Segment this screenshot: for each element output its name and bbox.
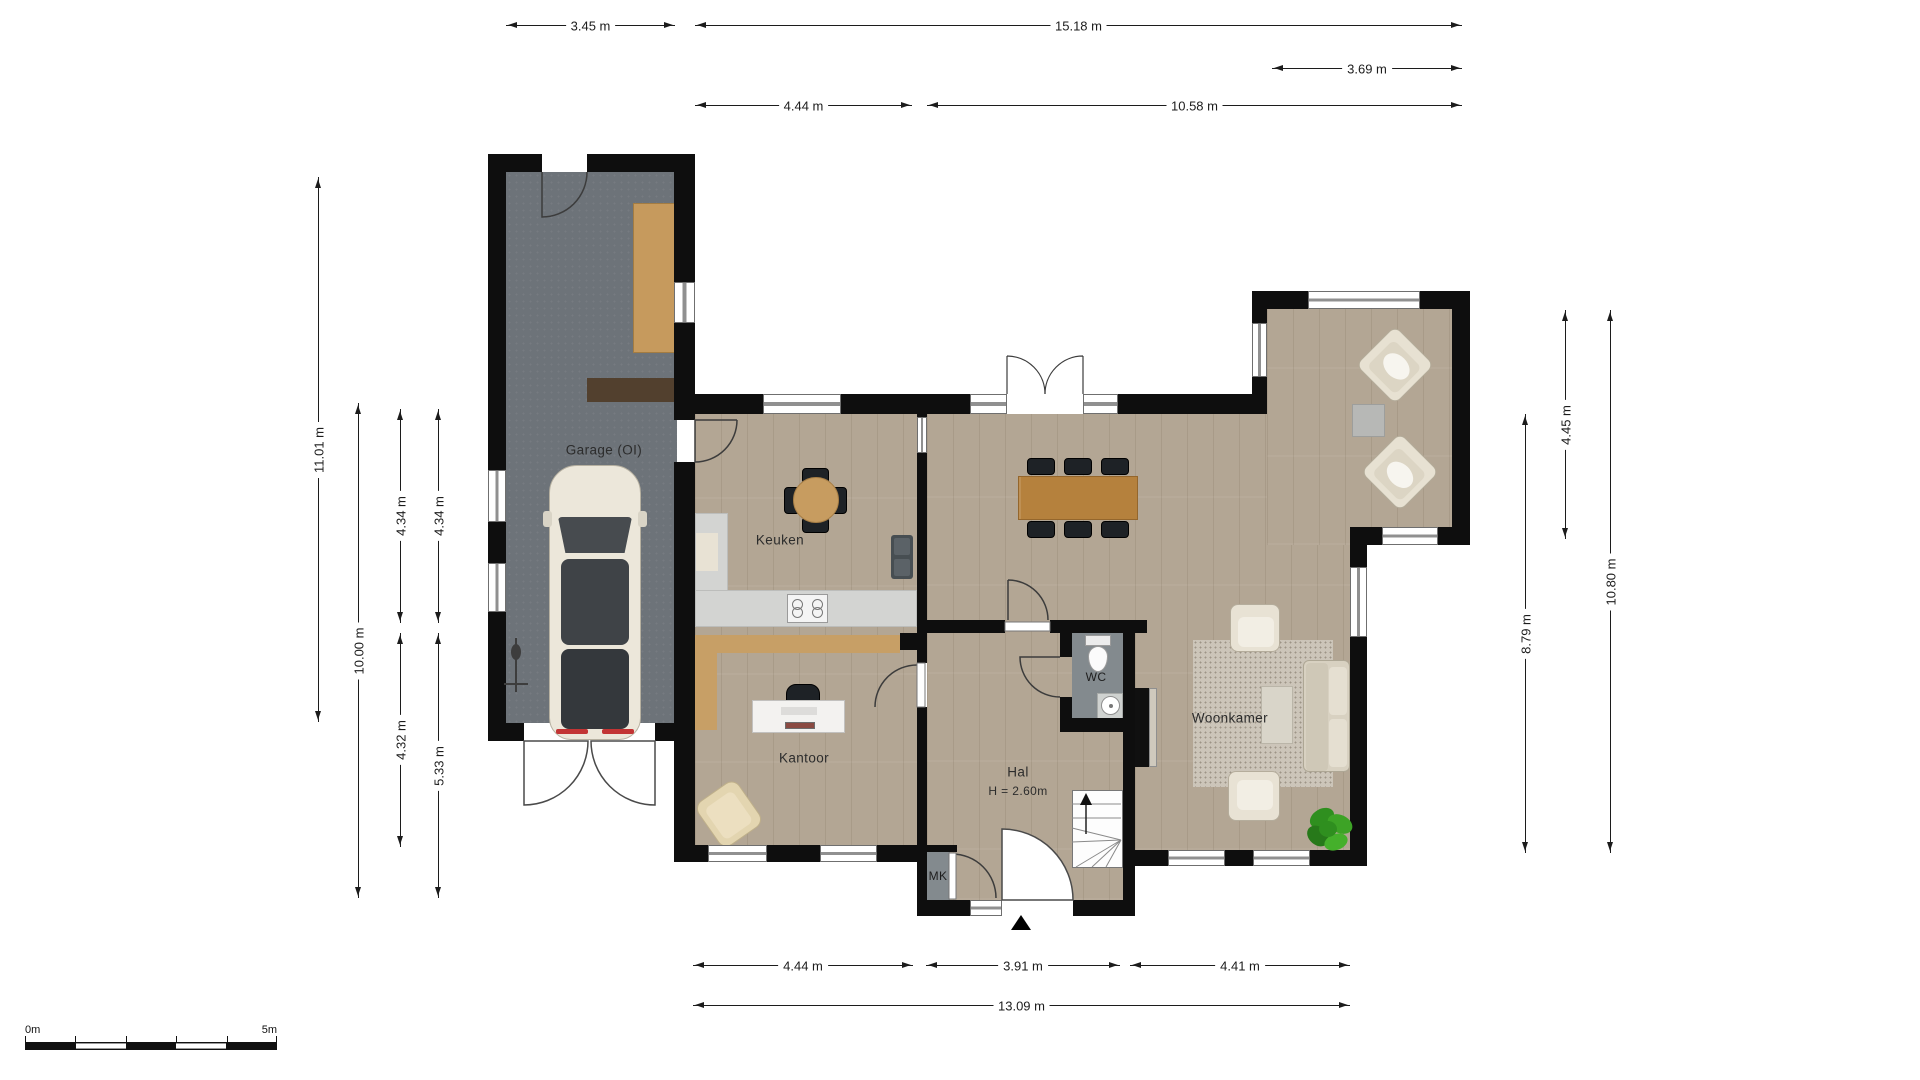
dining-chair [1101, 521, 1129, 538]
wall [927, 620, 1005, 633]
sofa [1303, 660, 1350, 772]
room-label-garage: Garage (OI) [566, 443, 642, 458]
wall [674, 462, 695, 741]
dining-chair [1027, 458, 1055, 475]
wall [488, 522, 506, 563]
dimension-line: 4.34 m [400, 409, 401, 623]
dimension-label: 8.79 m [1519, 609, 1534, 659]
car-windshield [558, 517, 632, 553]
scale-tick [176, 1036, 177, 1042]
side-table [1352, 404, 1385, 437]
car-roof-front [561, 559, 629, 645]
window [1252, 323, 1267, 377]
dimension-label: 13.09 m [993, 999, 1050, 1014]
wall [488, 612, 506, 723]
wall [1310, 850, 1367, 866]
dimension-line: 3.91 m [926, 965, 1120, 966]
workbench [633, 203, 677, 353]
dimension-line: 4.34 m [438, 409, 439, 623]
kitchen-sink [891, 535, 913, 579]
room-label-hal-height: H = 2.60m [988, 784, 1047, 798]
scale-bar-segment [226, 1043, 276, 1049]
french-door-arc [1045, 356, 1083, 394]
wall [1118, 394, 1267, 414]
wall [917, 900, 970, 916]
dimension-line: 11.01 m [318, 177, 319, 722]
wall [674, 845, 708, 862]
scale-tick [276, 1036, 277, 1042]
wall [488, 723, 524, 741]
dimension-line: 4.44 m [693, 965, 913, 966]
door-leaf [917, 663, 925, 707]
dining-chair [1064, 458, 1092, 475]
staircase [1072, 790, 1123, 868]
scale-tick [126, 1036, 127, 1042]
french-door-arc [1007, 356, 1045, 394]
wall [917, 394, 927, 417]
tv-niche [1135, 688, 1149, 767]
wall [488, 172, 506, 470]
window [708, 845, 767, 862]
car-taillight-left [556, 729, 588, 734]
office-cabinet-top [695, 635, 900, 653]
dimension-line: 3.45 m [506, 25, 675, 26]
toilet [1085, 635, 1111, 646]
wall [1123, 632, 1135, 916]
dimension-label: 4.45 m [1559, 400, 1574, 450]
dimension-line: 10.80 m [1610, 310, 1611, 853]
kitchen-round-table [793, 477, 839, 523]
dimension-line: 3.69 m [1272, 68, 1462, 69]
dimension-label: 4.34 m [394, 491, 409, 541]
wall [767, 845, 820, 862]
dimension-label: 4.44 m [779, 99, 829, 114]
dimension-line: 4.45 m [1565, 310, 1566, 539]
tv-niche-frame [1149, 688, 1157, 767]
dimension-line: 4.41 m [1130, 965, 1350, 966]
dimension-line: 15.18 m [695, 25, 1462, 26]
dimension-label: 4.32 m [394, 715, 409, 765]
window [1083, 394, 1118, 414]
dimension-line: 5.33 m [438, 633, 439, 898]
dimension-label: 3.91 m [998, 959, 1048, 974]
dimension-line: 10.58 m [927, 105, 1462, 106]
wall [674, 741, 695, 862]
scale-bar-segment [76, 1043, 126, 1049]
scale-tick [25, 1036, 26, 1042]
wall [900, 633, 917, 650]
dimension-line: 4.32 m [400, 633, 401, 847]
car-taillight-right [602, 729, 634, 734]
dimension-line: 4.44 m [695, 105, 912, 106]
scale-tick [227, 1036, 228, 1042]
window [488, 470, 506, 522]
wall [488, 154, 542, 172]
room-label-kantoor: Kantoor [779, 751, 829, 766]
car-roof-rear [561, 649, 629, 729]
wall [841, 394, 927, 414]
wc-sink [1101, 696, 1120, 715]
dimension-line: 10.00 m [358, 403, 359, 898]
room-label-mk: MK [929, 869, 948, 883]
dimension-line: 13.09 m [693, 1005, 1350, 1006]
dimension-line: 8.79 m [1525, 414, 1526, 853]
scale-bar-end-label: 5m [262, 1024, 277, 1036]
scale-bar-segment [26, 1043, 76, 1049]
dining-table [1018, 476, 1138, 520]
living-armchair [1228, 771, 1280, 821]
room-label-keuken: Keuken [756, 533, 804, 548]
window [1308, 291, 1420, 309]
wall [1135, 850, 1168, 866]
scale-bar: 0m 5m [25, 1042, 277, 1050]
desk [752, 700, 845, 733]
wall [1452, 291, 1470, 541]
window [1382, 527, 1438, 545]
dining-chair [1101, 458, 1129, 475]
window [970, 394, 1007, 414]
dimension-label: 10.00 m [352, 622, 367, 679]
wall [1225, 850, 1253, 866]
wall [674, 394, 763, 414]
dimension-label: 4.44 m [778, 959, 828, 974]
wall [1350, 527, 1367, 567]
window [763, 394, 841, 414]
entrance-marker [1011, 915, 1031, 930]
front-door-sidelight [970, 900, 1002, 916]
floor-plan: Garage (OI) Keuken Kantoor Hal H = 2.60m… [0, 0, 1920, 1080]
wall [917, 707, 927, 900]
window [674, 282, 695, 323]
stove [787, 594, 828, 623]
dining-chair [1064, 521, 1092, 538]
wall [1060, 632, 1072, 657]
dimension-label: 3.69 m [1342, 62, 1392, 77]
wall [927, 394, 970, 414]
dimension-label: 5.33 m [432, 741, 447, 791]
window [1253, 850, 1310, 866]
dining-chair [1027, 521, 1055, 538]
car-mirror-right [638, 511, 647, 527]
garage-door-leaf [591, 741, 655, 805]
scale-bar-start-label: 0m [25, 1024, 40, 1036]
wall [917, 453, 927, 663]
living-armchair [1230, 604, 1280, 652]
car-mirror-left [543, 511, 552, 527]
window [1350, 567, 1367, 637]
window [488, 563, 506, 612]
dimension-label: 10.58 m [1166, 99, 1223, 114]
scale-tick [75, 1036, 76, 1042]
wall [1438, 527, 1470, 545]
room-label-hal: Hal [1007, 765, 1028, 780]
shelf [587, 378, 677, 402]
car [549, 465, 641, 740]
dimension-label: 15.18 m [1050, 19, 1107, 34]
wall [674, 154, 695, 282]
wall [1350, 637, 1367, 866]
room-label-woonkamer: Woonkamer [1192, 711, 1268, 726]
wall [917, 845, 957, 852]
kitchen-appliance [696, 533, 718, 571]
dimension-label: 4.34 m [432, 491, 447, 541]
wall [1252, 291, 1267, 323]
dimension-label: 4.41 m [1215, 959, 1265, 974]
dimension-label: 11.01 m [312, 421, 327, 477]
room-label-wc: WC [1086, 670, 1107, 684]
dimension-label: 3.45 m [566, 19, 616, 34]
scale-bar-segment [126, 1043, 176, 1049]
window [917, 417, 927, 453]
scale-bar-segment [176, 1043, 226, 1049]
window [1168, 850, 1225, 866]
garage-door-leaf [524, 741, 588, 805]
office-cabinet-left [695, 653, 717, 730]
window [820, 845, 877, 862]
dimension-label: 10.80 m [1604, 553, 1619, 610]
wall [1252, 377, 1267, 414]
